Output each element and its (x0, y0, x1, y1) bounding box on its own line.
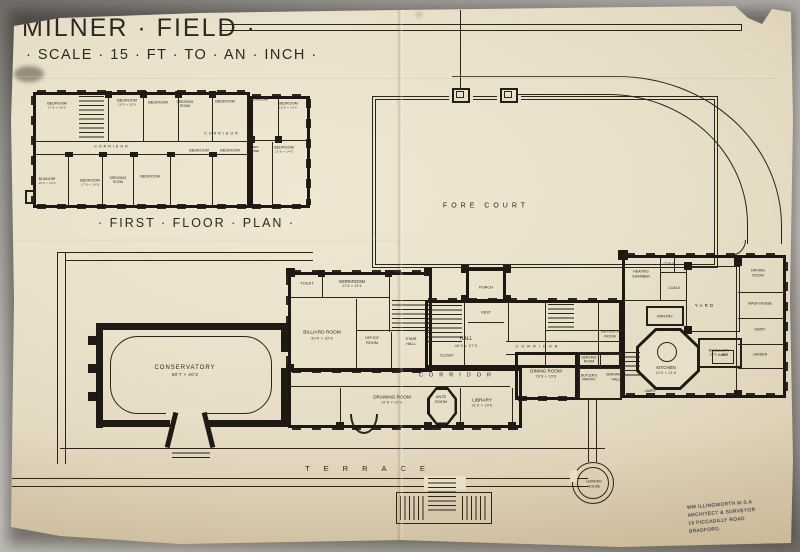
plan-linework: BEDROOM (215, 100, 235, 105)
plan-linework: CORRIDOR (204, 132, 240, 137)
room-label: BEDROOM15'6 × 14'6 (274, 146, 294, 155)
room-label: DRESSINGROOM (110, 176, 127, 184)
photo-of-drawing: MILNER · FIELD · · SCALE · 15 · FT · TO … (0, 0, 800, 552)
room-label: BEDROOM (148, 101, 168, 106)
crease (14, 238, 404, 241)
room-label: DRESSINGROOM (177, 100, 194, 108)
plan-linework: CORRIDOR (94, 145, 130, 150)
plan-linework: 16'0 × 15'0 (117, 103, 137, 107)
plan-linework (416, 12, 422, 17)
room-label: BOUDOIR15'0 × 13'0 (38, 177, 55, 185)
drawing-sheet: MILNER · FIELD · · SCALE · 15 · FT · TO … (0, 0, 800, 552)
crease (16, 76, 776, 79)
room-label: BEDROOM (215, 100, 235, 105)
ink-smudge (14, 66, 44, 82)
room-label: BEDROOM16'6 × 14'0 (278, 102, 298, 111)
room-label: BEDROOM (220, 149, 240, 154)
plan-linework: BEDROOM (148, 101, 168, 106)
plan-linework: 15'0 × 13'0 (38, 181, 55, 185)
plan-linework: 17'6 × 16'0 (47, 106, 67, 110)
plan-linework: BEDROOM (248, 98, 268, 103)
plan-linework: 16'6 × 14'0 (278, 106, 298, 110)
plan-linework: BEDROOM (189, 149, 209, 154)
room-label: BEDROOM (140, 175, 160, 180)
room-label: CORRIDOR (204, 132, 240, 137)
plan-linework: 15'6 × 14'6 (274, 150, 294, 154)
room-label: BEDROOM (248, 98, 268, 103)
plan-linework: ROOM (110, 180, 127, 184)
room-label: BEDROOM17'6 × 14'6 (80, 179, 100, 188)
plan-linework: BEDROOM (140, 175, 160, 180)
plan-linework: STORE (249, 150, 259, 154)
room-label: BEDROOM17'6 × 16'0 (47, 102, 67, 111)
room-label: BEDROOM16'0 × 15'0 (117, 99, 137, 108)
plan-linework: 17'6 × 14'6 (80, 183, 100, 187)
room-label: CORRIDOR (94, 145, 130, 150)
plan-linework: BEDROOM (220, 149, 240, 154)
centre-fold-crease (396, 6, 404, 546)
room-label: BEDROOM (189, 149, 209, 154)
room-label: LINENSTORE (249, 146, 259, 154)
plan-linework: ROOM (177, 104, 194, 108)
